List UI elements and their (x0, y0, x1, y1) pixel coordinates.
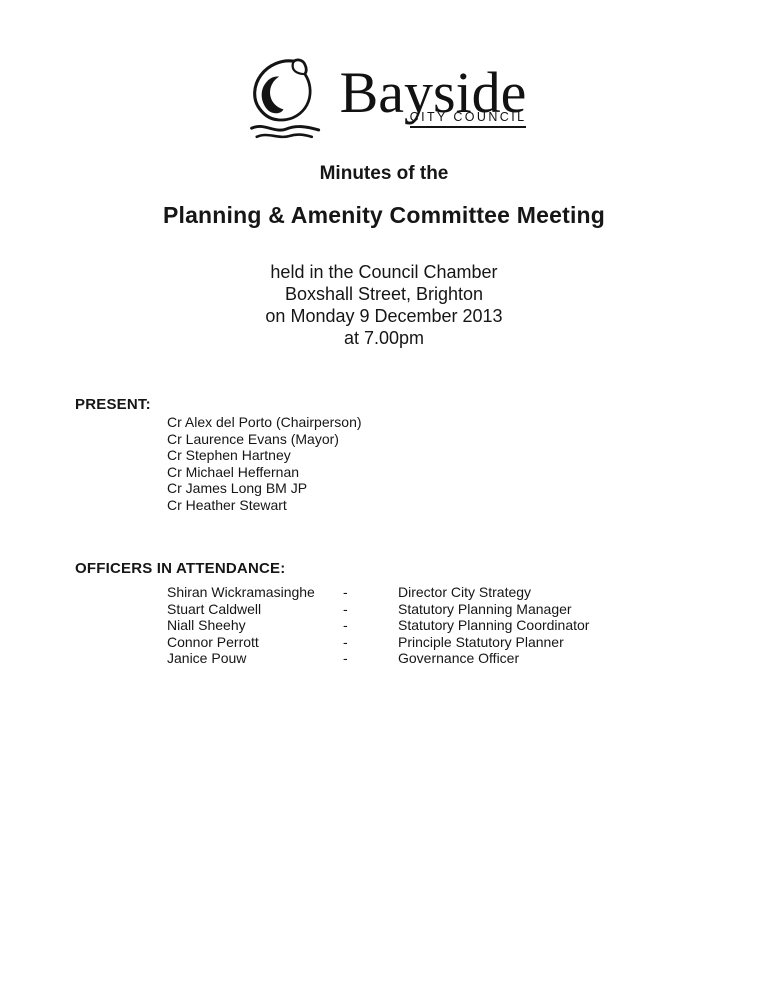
officer-role: Governance Officer (398, 650, 589, 667)
officer-separator: - (343, 601, 398, 618)
venue-block: held in the Council Chamber Boxshall Str… (0, 261, 768, 349)
present-member: Cr Heather Stewart (167, 497, 362, 514)
page-title: Planning & Amenity Committee Meeting (0, 202, 768, 229)
officer-role: Statutory Planning Manager (398, 601, 589, 618)
officer-name: Niall Sheehy (167, 617, 343, 634)
logo-wordmark: Bayside CITY COUNCIL (340, 64, 527, 128)
present-label: PRESENT: (75, 396, 151, 413)
officer-role: Principle Statutory Planner (398, 634, 589, 651)
present-member: Cr Stephen Hartney (167, 447, 362, 464)
council-logo: Bayside CITY COUNCIL (0, 56, 768, 142)
pre-title: Minutes of the (0, 163, 768, 185)
venue-line: held in the Council Chamber (0, 261, 768, 283)
venue-line: on Monday 9 December 2013 (0, 305, 768, 327)
officer-name: Stuart Caldwell (167, 601, 343, 618)
officer-role: Statutory Planning Coordinator (398, 617, 589, 634)
venue-line: at 7.00pm (0, 327, 768, 349)
officer-name: Janice Pouw (167, 650, 343, 667)
officer-separator: - (343, 584, 398, 601)
present-member: Cr Alex del Porto (Chairperson) (167, 414, 362, 431)
officer-name: Shiran Wickramasinghe (167, 584, 343, 601)
logo-subtitle: CITY COUNCIL (410, 111, 527, 128)
present-list: Cr Alex del Porto (Chairperson) Cr Laure… (167, 414, 362, 514)
officers-label: OFFICERS IN ATTENDANCE: (75, 560, 285, 577)
shell-waves-icon (242, 56, 330, 142)
present-member: Cr Michael Heffernan (167, 464, 362, 481)
officer-separator: - (343, 634, 398, 651)
document-page: Bayside CITY COUNCIL Minutes of the Plan… (0, 0, 768, 994)
officer-separator: - (343, 650, 398, 667)
officers-table: Shiran Wickramasinghe - Director City St… (167, 584, 589, 667)
officer-role: Director City Strategy (398, 584, 589, 601)
venue-line: Boxshall Street, Brighton (0, 283, 768, 305)
officer-name: Connor Perrott (167, 634, 343, 651)
present-member: Cr Laurence Evans (Mayor) (167, 431, 362, 448)
officer-separator: - (343, 617, 398, 634)
present-member: Cr James Long BM JP (167, 480, 362, 497)
